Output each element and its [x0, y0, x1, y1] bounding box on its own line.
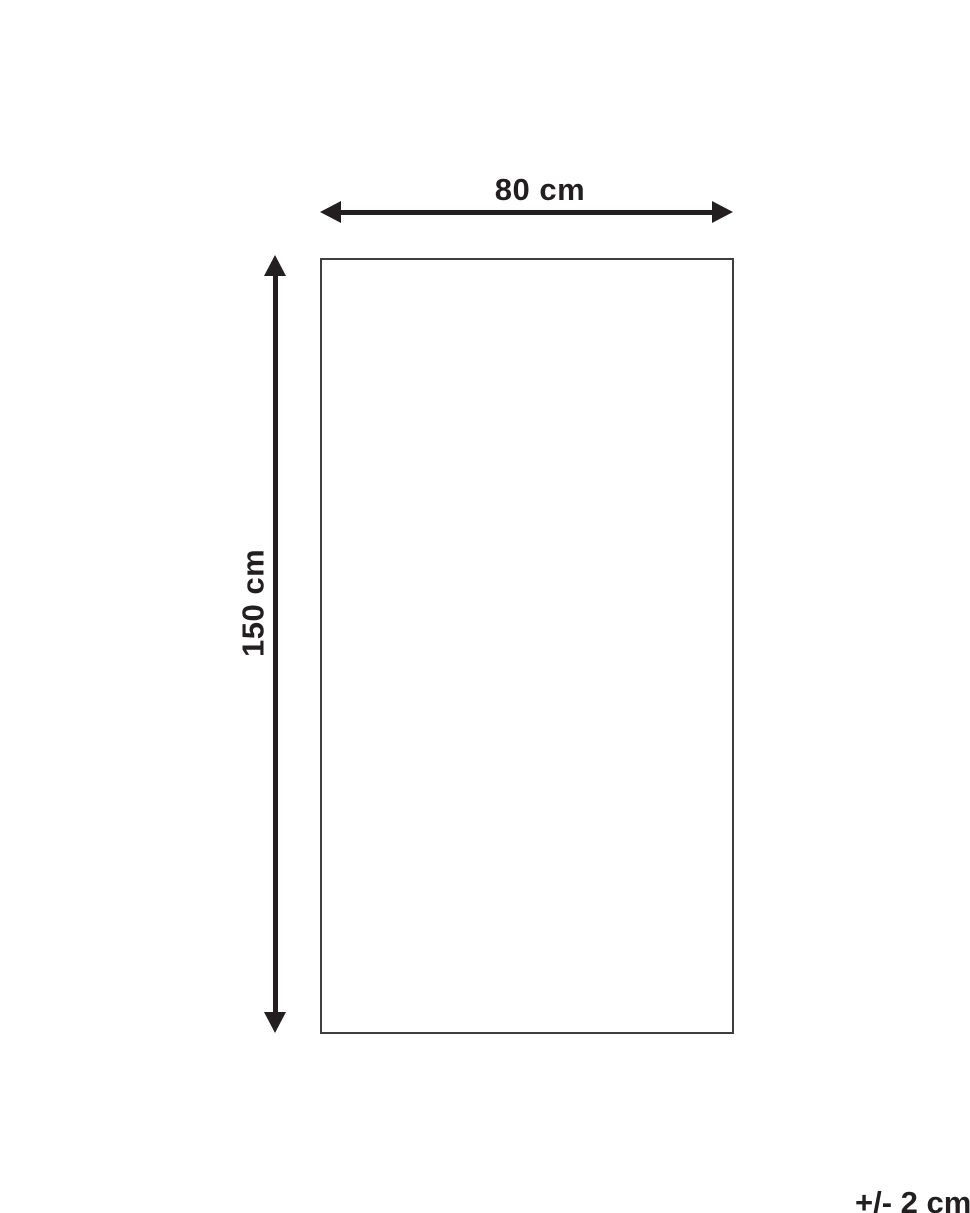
- arrow-line: [333, 210, 720, 215]
- arrow-right-head-icon: [712, 201, 733, 223]
- product-outline-rectangle: [320, 258, 734, 1034]
- arrow-down-head-icon: [264, 1012, 286, 1033]
- height-dimension-arrow: [264, 255, 287, 1033]
- dimension-diagram: 80 cm 150 cm +/- 2 cm: [0, 0, 970, 1213]
- tolerance-label: +/- 2 cm: [855, 1186, 970, 1213]
- arrow-line: [273, 268, 278, 1020]
- width-dimension-arrow: [320, 201, 733, 224]
